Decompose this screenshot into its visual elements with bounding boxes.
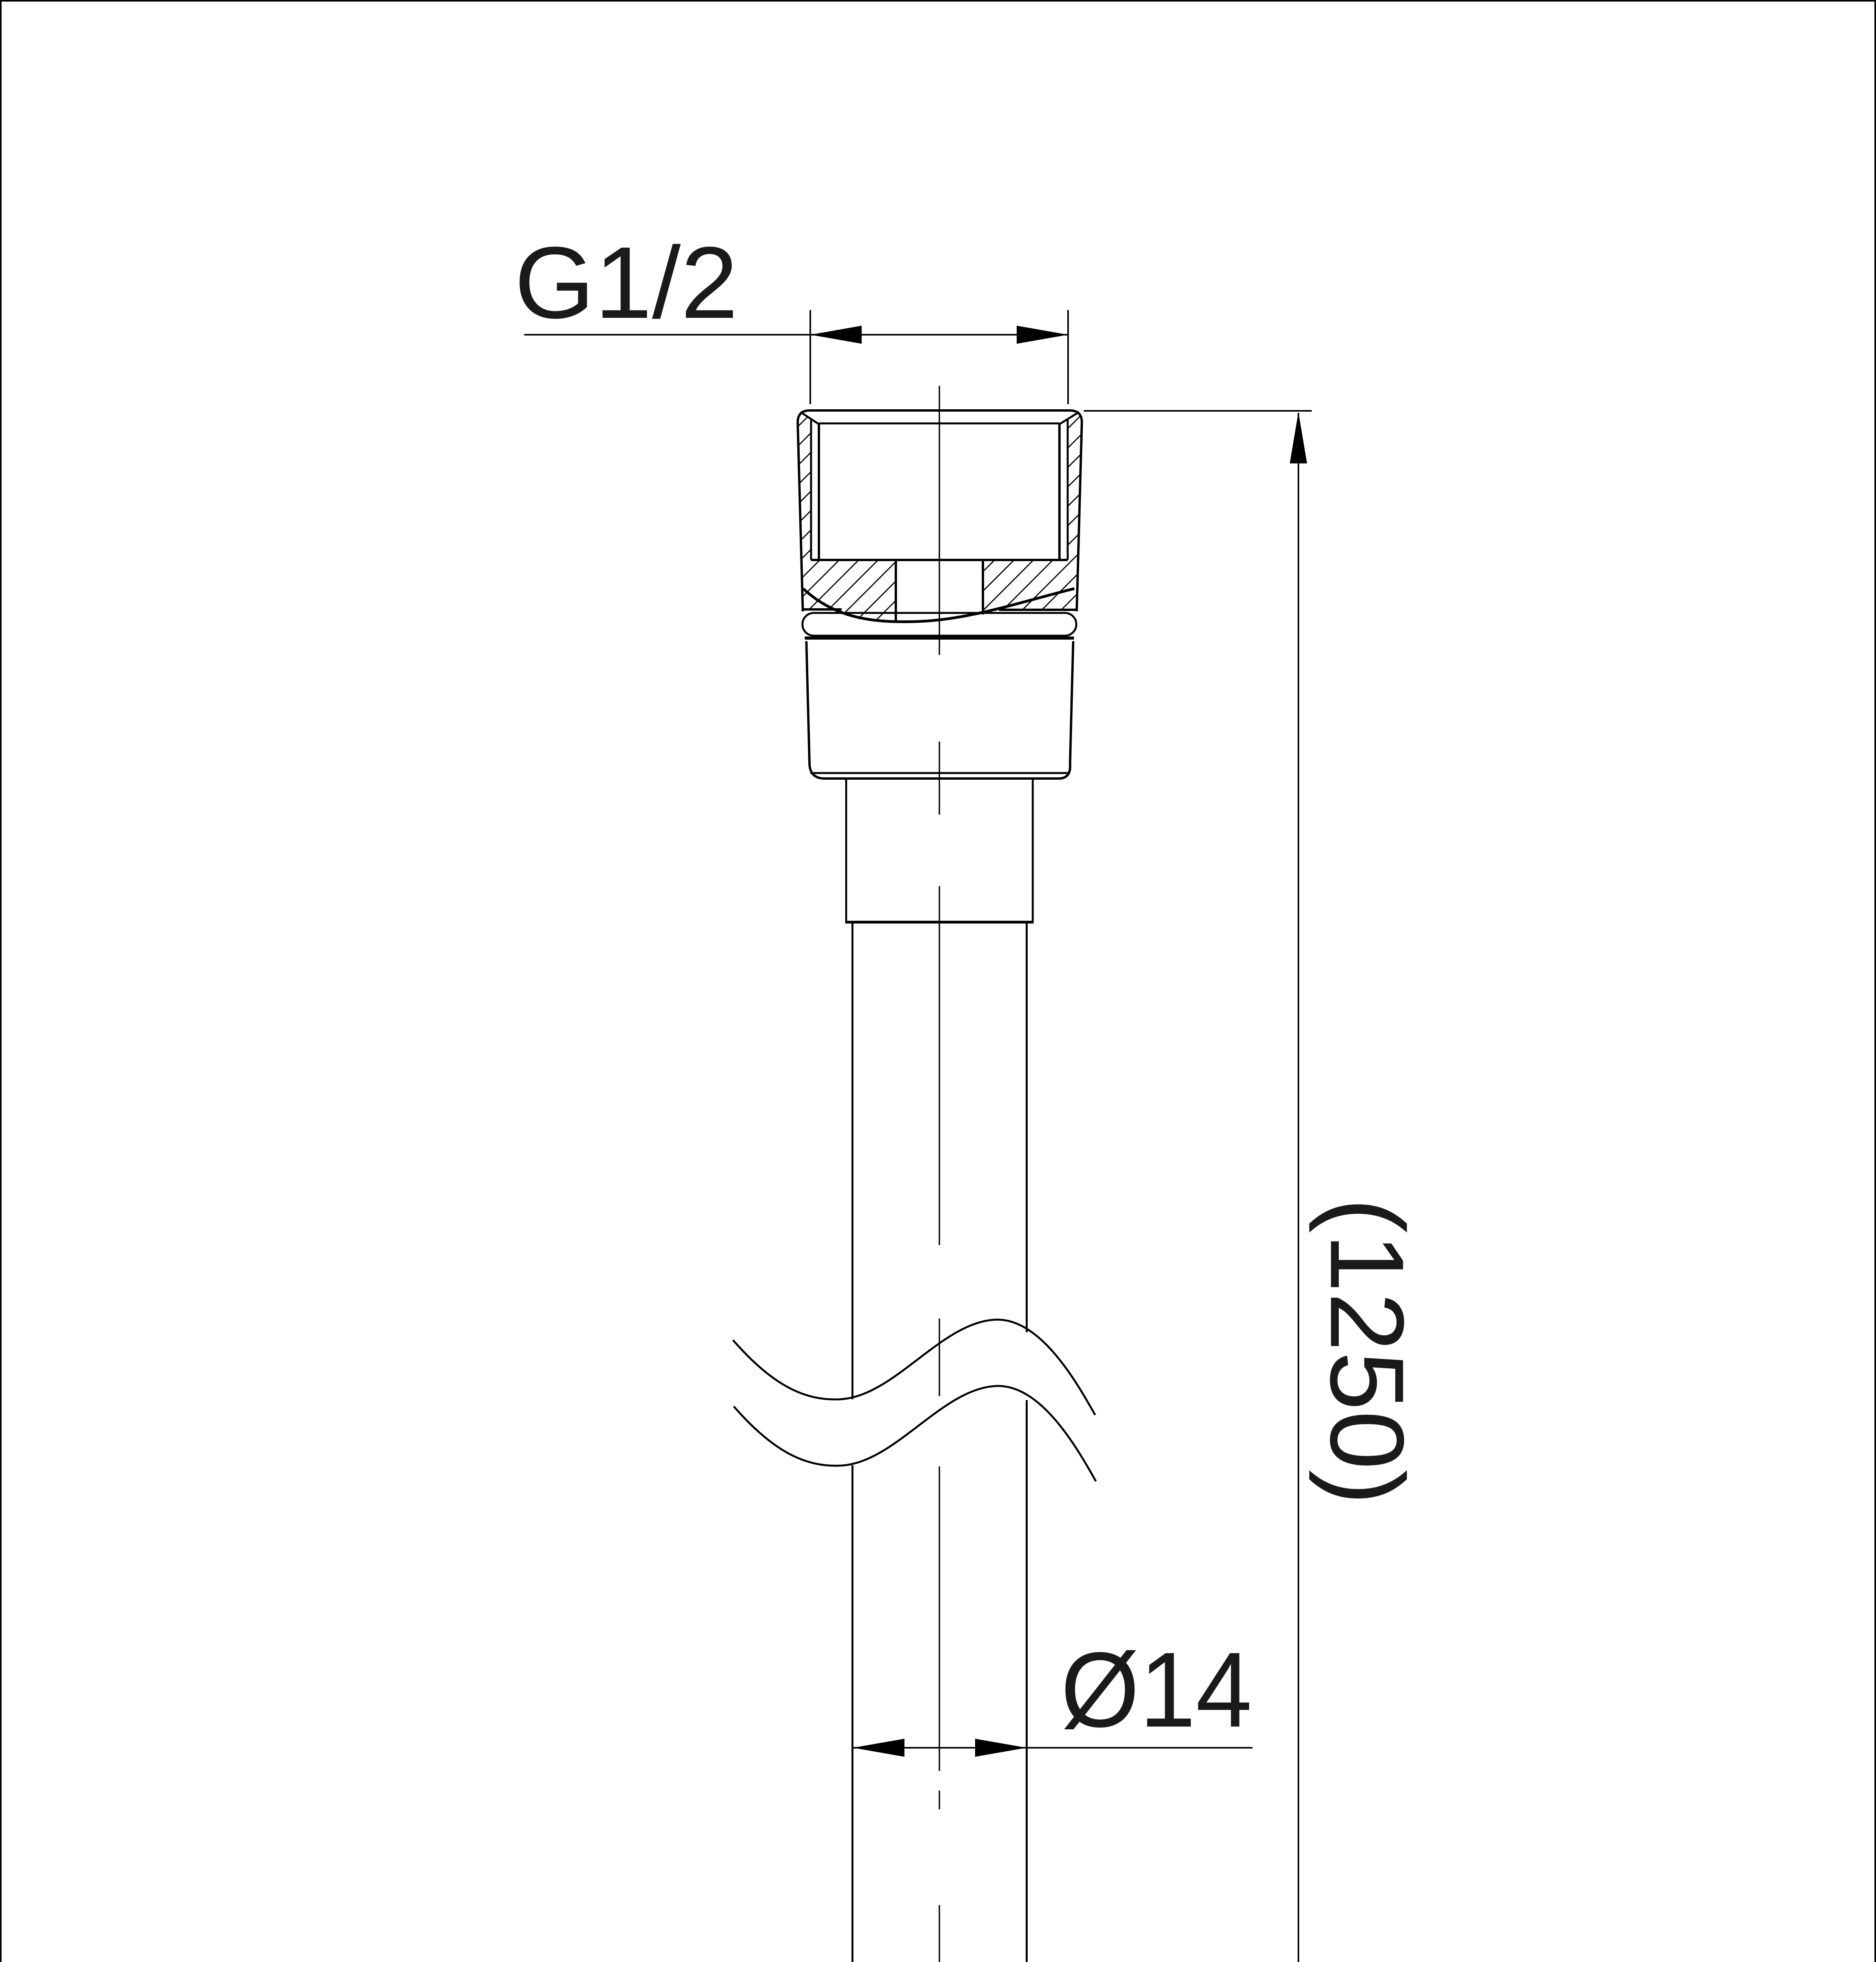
svg-text:(1250): (1250) bbox=[1308, 1198, 1426, 1505]
svg-text:Ø14: Ø14 bbox=[1061, 1630, 1252, 1749]
svg-text:G1/2: G1/2 bbox=[514, 226, 738, 340]
